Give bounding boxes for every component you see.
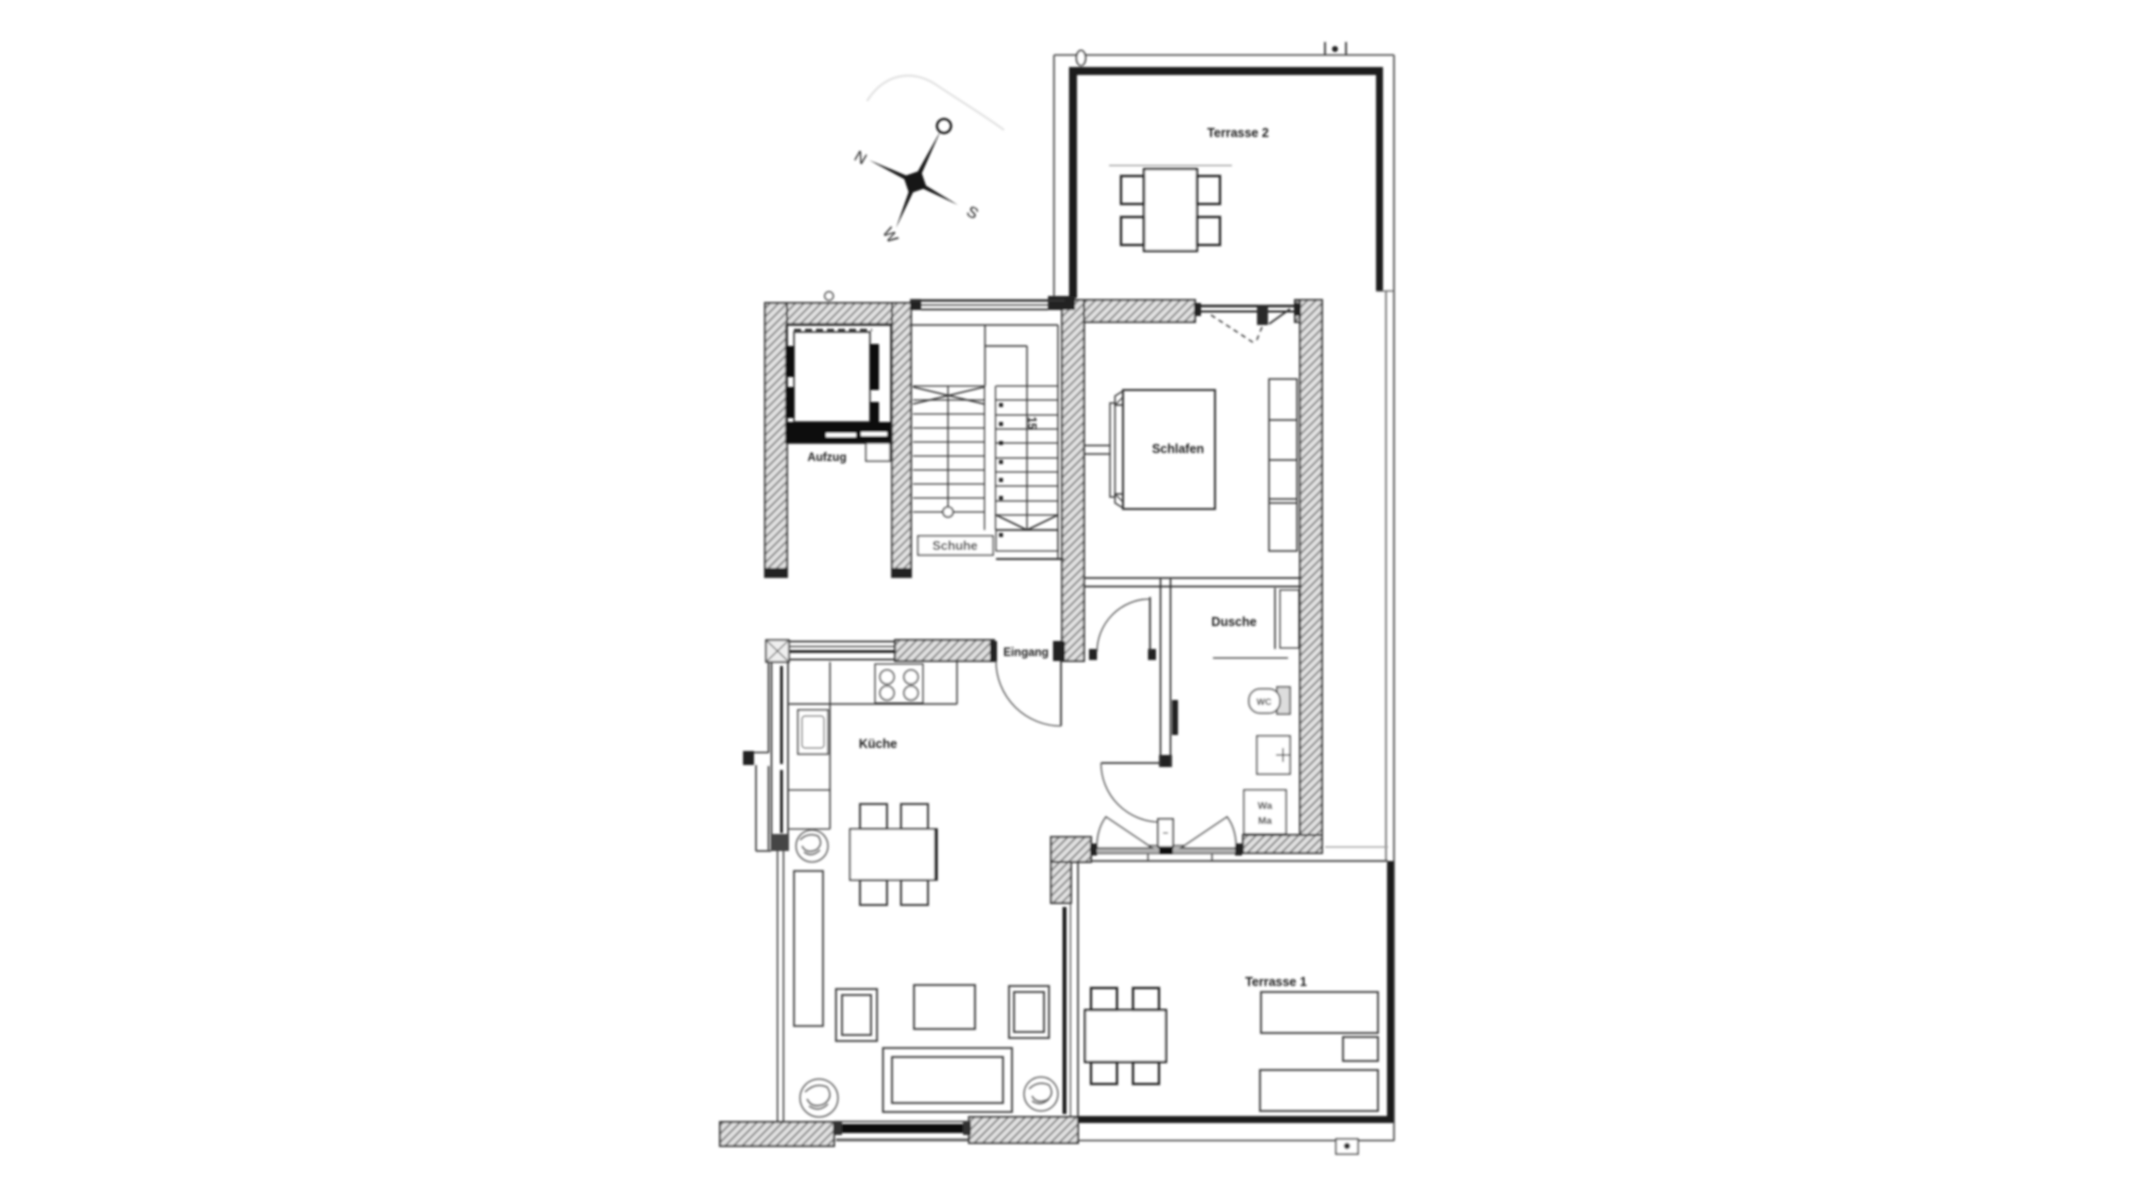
svg-text:WC: WC [1257, 697, 1272, 707]
svg-text:Dusche: Dusche [1211, 615, 1256, 629]
svg-text:Ma: Ma [1258, 816, 1272, 827]
svg-text:Schlafen: Schlafen [1152, 442, 1204, 456]
svg-text:Küche: Küche [859, 737, 897, 751]
svg-text:Aufzug: Aufzug [808, 452, 847, 464]
svg-text:15: 15 [1025, 417, 1037, 430]
svg-text:Eingang: Eingang [1003, 647, 1048, 659]
svg-text:Terrasse 2: Terrasse 2 [1207, 126, 1269, 140]
svg-text:Wa: Wa [1258, 801, 1273, 812]
svg-text:Schuhe: Schuhe [932, 539, 977, 553]
svg-text:Terrasse 1: Terrasse 1 [1245, 975, 1307, 989]
